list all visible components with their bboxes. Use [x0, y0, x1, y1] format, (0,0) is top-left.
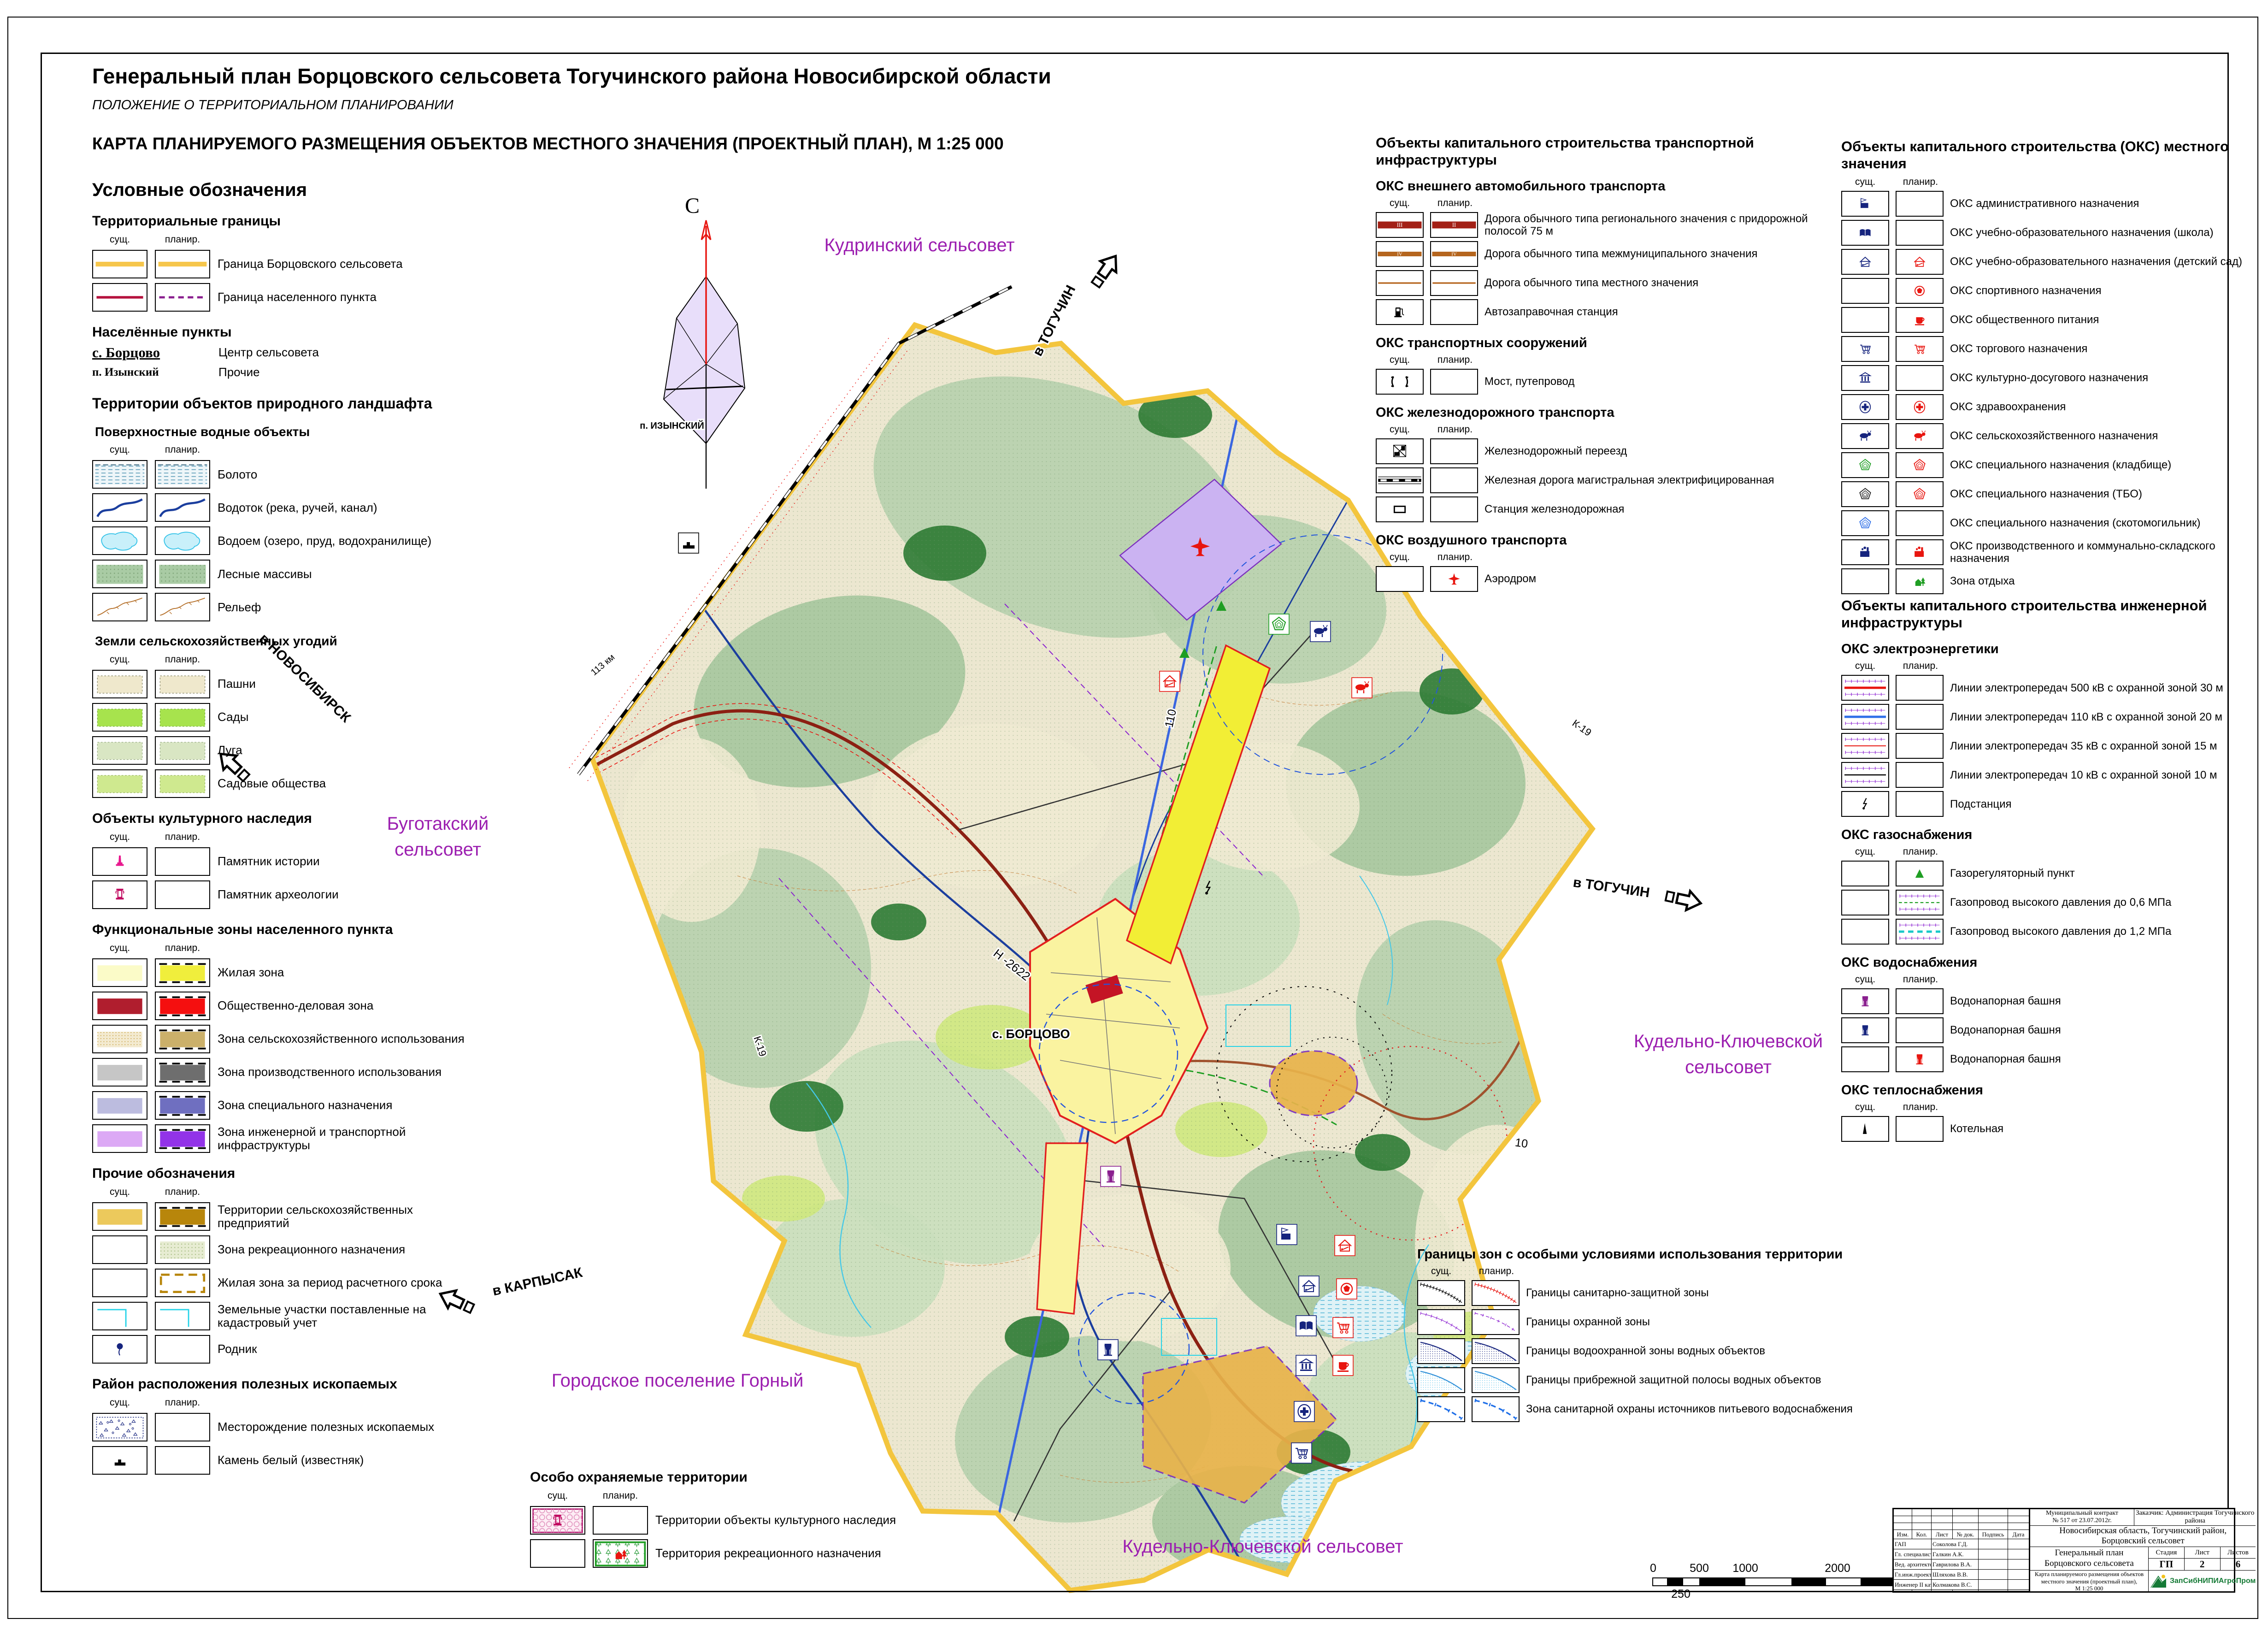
legend-swatch-planned	[1896, 988, 1944, 1014]
legend-item-label: Водонапорная башня	[1950, 1053, 2061, 1065]
stamp-cell: Колмакова В.С.	[1932, 1580, 1979, 1590]
legend-swatch-existing	[1841, 220, 1889, 246]
legend-item-label: Общественно-деловая зона	[218, 999, 373, 1013]
stamp-cell-empty	[1953, 1509, 1979, 1516]
legend-column-title: Условные обозначения	[92, 180, 475, 201]
legend-item: Аэродром	[1376, 566, 1818, 592]
legend-swatch-existing	[92, 670, 147, 698]
header-planned: планир.	[155, 1187, 210, 1198]
stamp-cell: Шляхова В.В.	[1932, 1570, 1979, 1580]
legend-swatch-existing	[92, 703, 147, 732]
legend-special-zones: Границы зон с особыми условиями использо…	[1417, 1236, 1860, 1425]
legend-item-label: Зона производственного использования	[218, 1065, 442, 1079]
legend-swatch-planned	[1896, 1046, 1944, 1072]
legend-item-label: Зона сельскохозяйственного использования	[218, 1032, 465, 1046]
legend-protected-areas: Особо охраняемые территориисущ.планир.Те…	[530, 1457, 972, 1572]
scale-tick-label: 2000	[1825, 1562, 1850, 1575]
legend-item: Зона отдыха	[1841, 568, 2251, 594]
legend-item-label: Луга	[218, 744, 242, 757]
legend-item-label: Границы водоохранной зоны водных объекто…	[1526, 1345, 1765, 1357]
legend-swatch-existing	[92, 250, 147, 278]
legend-column-title: Объекты капитального строительства инжен…	[1841, 597, 2251, 631]
legend-item-label: Месторождение полезных ископаемых	[218, 1420, 434, 1434]
legend-item: Пашни	[92, 670, 475, 698]
legend-swatch-planned	[1896, 481, 1944, 507]
stamp-cell: ГАП	[1894, 1539, 1932, 1549]
legend-section-title: Функциональные зоны населенного пункта	[92, 922, 475, 937]
legend-swatch-existing	[1841, 675, 1889, 701]
legend-swatch-planned	[1896, 704, 1944, 730]
legend-item: ОКС торгового назначения	[1841, 336, 2251, 362]
legend-swatch-planned	[155, 736, 210, 765]
stamp-cell: Соколова Г.Д.	[1932, 1539, 1979, 1549]
legend-item: Зона сельскохозяйственного использования	[92, 1025, 475, 1053]
legend-item-label: Лесные массивы	[218, 567, 312, 581]
legend-item-label: Садовые общества	[218, 777, 326, 791]
legend-right-column: Объекты капитального строительства (ОКС)…	[1841, 138, 2251, 1145]
legend-item: IVIVДорога обычного типа межмуниципально…	[1376, 241, 1818, 267]
legend-state-headers: сущ.планир.	[92, 444, 475, 455]
stamp-cell-empty	[1979, 1559, 2008, 1570]
scale-tick-label: 500	[1690, 1562, 1709, 1575]
legend-section-title: ОКС водоснабжения	[1841, 956, 2251, 970]
legend-item-label: Границы санитарно-защитной зоны	[1526, 1287, 1708, 1299]
legend-item: Памятник археологии	[92, 880, 475, 909]
stamp-cell-empty	[1932, 1590, 1953, 1591]
legend-swatch-existing	[1841, 423, 1889, 449]
legend-swatch-planned	[1896, 278, 1944, 304]
legend-item-label: Дорога обычного типа регионального значе…	[1485, 213, 1818, 238]
legend-swatch-planned	[1472, 1396, 1520, 1422]
legend-item: Садовые общества	[92, 769, 475, 798]
stamp-cell-empty	[1979, 1549, 2008, 1559]
org-logo: ЗапСибНИПИАгроПром	[2149, 1571, 2256, 1592]
legend-item-label: Памятник истории	[218, 855, 320, 868]
scale-tick-label: 1000	[1732, 1562, 1758, 1575]
legend-section-title: Земли сельскохозяйственных угодий	[95, 634, 475, 649]
legend-item: Котельная	[1841, 1116, 2251, 1142]
stamp-cell: Изм.	[1894, 1530, 1912, 1539]
legend-item: ОКС учебно-образовательного назначения (…	[1841, 220, 2251, 246]
legend-swatch-planned	[1896, 510, 1944, 536]
svg-text:IV: IV	[1397, 251, 1402, 257]
legend-swatch-planned	[155, 769, 210, 798]
header-planned: планир.	[1897, 846, 1944, 857]
stamp-cell: Дата	[2008, 1530, 2029, 1539]
legend-item: Границы прибрежной защитной полосы водны…	[1417, 1367, 1860, 1393]
legend-item-label: ОКС спортивного назначения	[1950, 284, 2101, 297]
legend-swatch-existing	[1376, 496, 1424, 522]
legend-swatch-existing	[1841, 919, 1889, 945]
legend-item: ОКС спортивного назначения	[1841, 278, 2251, 304]
stamp-cell-empty	[1979, 1523, 2008, 1530]
legend-item-label: Зона отдыха	[1950, 575, 2015, 587]
legend-swatch-existing	[1841, 1017, 1889, 1043]
legend-state-headers: сущ.планир.	[1376, 552, 1818, 563]
header-planned: планир.	[155, 444, 210, 455]
legend-swatch-planned	[1896, 249, 1944, 275]
legend-state-headers: сущ.планир.	[1376, 424, 1818, 435]
legend-swatch-existing	[92, 1058, 147, 1087]
legend-swatch-planned	[1430, 299, 1478, 325]
legend-swatch-planned	[155, 593, 210, 621]
legend-swatch-planned	[1896, 539, 1944, 565]
legend-item-label: ОКС учебно-образовательного назначения (…	[1950, 226, 2214, 239]
header-planned: планир.	[155, 654, 210, 665]
stamp-cell-empty	[1979, 1539, 2008, 1549]
legend-swatch-existing	[1841, 988, 1889, 1014]
legend-item: ОКС учебно-образовательного назначения (…	[1841, 249, 2251, 275]
legend-item: ОКС производственного и коммунально-скла…	[1841, 539, 2251, 565]
title-block: Изм.Кол.Лист№ док.ПодписьДатаГАПСоколова…	[1892, 1508, 2235, 1593]
legend-state-headers: сущ.планир.	[1841, 177, 2251, 188]
header-planned: планир.	[155, 943, 210, 954]
header-planned: планир.	[593, 1490, 648, 1501]
legend-swatch-existing	[1376, 299, 1424, 325]
legend-swatch-planned	[155, 493, 210, 522]
legend-item-label: Котельная	[1950, 1122, 2003, 1135]
stamp-cell-empty	[1979, 1516, 2008, 1523]
legend-item: Границы санитарно-защитной зоны	[1417, 1280, 1860, 1306]
stamp-cell-empty	[1894, 1523, 1912, 1530]
legend-swatch-planned	[155, 880, 210, 909]
stamp-cell: Инженер II кат.	[1894, 1580, 1932, 1590]
legend-item: Граница населенного пункта	[92, 283, 475, 312]
legend-item-label: Водонапорная башня	[1950, 995, 2061, 1007]
legend-state-headers: сущ.планир.	[92, 943, 475, 954]
legend-swatch-planned	[155, 1091, 210, 1120]
legend-item-label: ОКС специального назначения (ТБО)	[1950, 488, 2142, 500]
legend-item: ОКС общественного питания	[1841, 307, 2251, 333]
legend-item: Территория рекреационного назначения	[530, 1539, 972, 1568]
legend-swatch-planned: II	[1430, 212, 1478, 238]
legend-item: Зона рекреационного назначения	[92, 1235, 475, 1264]
legend-item-label: Земельные участки поставленные на кадаст…	[218, 1303, 475, 1330]
legend-swatch-planned	[155, 1302, 210, 1330]
legend-item: Газопровод высокого давления до 1,2 МПа	[1841, 919, 2251, 945]
legend-item: Станция железнодорожная	[1376, 496, 1818, 522]
legend-swatch-planned	[155, 1235, 210, 1264]
legend-item-label: Железнодорожный переезд	[1485, 445, 1627, 457]
legend-state-headers: сущ.планир.	[1841, 846, 2251, 857]
legend-swatch-existing	[1841, 762, 1889, 788]
legend-item: Зона специального назначения	[92, 1091, 475, 1120]
legend-swatch-existing	[1841, 452, 1889, 478]
legend-item: Луга	[92, 736, 475, 765]
legend-swatch-existing	[92, 1335, 147, 1364]
legend-swatch-existing	[1841, 890, 1889, 915]
legend-item: Газорегуляторный пункт	[1841, 861, 2251, 886]
header-existing: сущ.	[92, 1397, 147, 1408]
legend-item-label: ОКС учебно-образовательного назначения (…	[1950, 255, 2242, 268]
legend-swatch-existing	[1841, 1116, 1889, 1142]
legend-item: Линии электропередач 10 кВ с охранной зо…	[1841, 762, 2251, 788]
legend-state-headers: сущ.планир.	[1841, 1102, 2251, 1113]
header-existing: сущ.	[1376, 424, 1424, 435]
header-planned: планир.	[155, 234, 210, 245]
scale-tick-label: 0	[1650, 1562, 1656, 1575]
legend-state-headers: сущ.планир.	[1841, 661, 2251, 672]
scale-sub-label: 250	[1671, 1588, 1691, 1601]
legend-item: Мост, путепровод	[1376, 369, 1818, 395]
header-existing: сущ.	[1841, 974, 1889, 985]
legend-swatch-existing	[92, 593, 147, 621]
legend-swatch-existing	[92, 736, 147, 765]
legend-item: Водонапорная башня	[1841, 1046, 2251, 1072]
legend-item-label: Граница населенного пункта	[218, 290, 377, 304]
legend-swatch-planned	[1430, 566, 1478, 592]
legend-swatch-planned	[155, 958, 210, 987]
legend-item-label: Зона санитарной охраны источников питьев…	[1526, 1403, 1853, 1415]
legend-item-label: Жилая зона за период расчетного срока	[218, 1276, 442, 1290]
page-subtitle: ПОЛОЖЕНИЕ О ТЕРРИТОРИАЛЬНОМ ПЛАНИРОВАНИИ	[92, 98, 1659, 113]
legend-item-label: Автозаправочная станция	[1485, 306, 1618, 318]
legend-swatch-planned	[1896, 861, 1944, 886]
legend-swatch-planned	[1472, 1367, 1520, 1393]
header-planned: планир.	[1897, 661, 1944, 672]
legend-swatch-planned	[1896, 1017, 1944, 1043]
stamp-sheets-header: Листов	[2221, 1547, 2256, 1558]
title-block-signatures: Изм.Кол.Лист№ док.ПодписьДатаГАПСоколова…	[1894, 1509, 2030, 1591]
org-logo-icon	[2149, 1573, 2168, 1589]
legend-item: ОКС культурно-досугового назначения	[1841, 365, 2251, 391]
legend-item-label: Зона рекреационного назначения	[218, 1243, 405, 1257]
legend-swatch-existing	[1376, 270, 1424, 296]
stamp-cell-empty	[1953, 1516, 1979, 1523]
header-existing: сущ.	[1841, 846, 1889, 857]
legend-item-label: Зона инженерной и транспортной инфрастру…	[218, 1125, 475, 1152]
legend-item: Памятник истории	[92, 847, 475, 876]
stamp-cell: Подпись	[1979, 1530, 2008, 1539]
stamp-cell-empty	[2008, 1523, 2029, 1530]
header-planned: планир.	[1897, 1102, 1944, 1113]
legend-item: ОКС здравоохранения	[1841, 394, 2251, 420]
legend-swatch-planned	[1896, 890, 1944, 915]
legend-swatch-existing	[92, 1235, 147, 1264]
legend-swatch-planned	[155, 460, 210, 489]
legend-swatch-existing	[1841, 336, 1889, 362]
legend-state-headers: сущ.планир.	[1417, 1266, 1860, 1277]
stamp-cell-empty	[1979, 1580, 2008, 1590]
header-existing: сущ.	[92, 943, 147, 954]
stamp-cell: № док.	[1953, 1530, 1979, 1539]
legend-swatch-planned	[1896, 762, 1944, 788]
legend-item: IIIIIДорога обычного типа регионального …	[1376, 212, 1818, 238]
legend-swatch-planned	[1472, 1338, 1520, 1364]
legend-settlement-row: с. БорцовоЦентр сельсовета	[92, 344, 475, 361]
legend-swatch-planned	[1896, 394, 1944, 420]
legend-item-label: Аэродром	[1485, 573, 1536, 585]
legend-item-label: Водоем (озеро, пруд, водохранилище)	[218, 534, 431, 548]
stamp-cell-empty	[1894, 1516, 1912, 1523]
legend-item: Камень белый (известняк)	[92, 1446, 475, 1475]
legend-item-label: Газопровод высокого давления до 0,6 МПа	[1950, 896, 2171, 909]
stamp-cell-empty	[1912, 1516, 1932, 1523]
legend-swatch-existing	[92, 1446, 147, 1475]
legend-swatch-planned	[155, 1335, 210, 1364]
header-planned: планир.	[1431, 424, 1479, 435]
legend-swatch-planned	[1896, 191, 1944, 217]
legend-item: Границы водоохранной зоны водных объекто…	[1417, 1338, 1860, 1364]
settlement-sample: с. Борцово	[92, 344, 211, 361]
legend-item-label: Линии электропередач 35 кВ с охранной зо…	[1950, 740, 2217, 752]
header-planned: планир.	[1897, 177, 1944, 188]
stamp-cell-empty	[2008, 1559, 2029, 1570]
legend-item-label: Сады	[218, 710, 248, 724]
legend-swatch-planned	[1896, 365, 1944, 391]
stamp-sheet-value: 2	[2185, 1559, 2221, 1570]
legend-item: Территории сельскохозяйственных предприя…	[92, 1202, 475, 1231]
legend-swatch-existing	[92, 1413, 147, 1441]
header-planned: планир.	[155, 1397, 210, 1408]
legend-swatch-planned	[1430, 270, 1478, 296]
stamp-stage-header: Стадия	[2149, 1547, 2185, 1558]
legend-section-title: Особо охраняемые территории	[530, 1470, 972, 1485]
legend-swatch-existing	[1841, 1046, 1889, 1072]
stamp-doc-title: Карта планируемого размещения объектов м…	[2030, 1571, 2149, 1592]
legend-item-label: ОКС культурно-досугового назначения	[1950, 372, 2148, 384]
legend-column-title: Объекты капитального строительства (ОКС)…	[1841, 138, 2251, 172]
legend-state-headers: сущ.планир.	[92, 1397, 475, 1408]
legend-group-title: Территории объектов природного ландшафта	[92, 395, 475, 412]
legend-item: Водонапорная башня	[1841, 1017, 2251, 1043]
legend-swatch-existing	[92, 283, 147, 312]
legend-swatch-existing	[1376, 467, 1424, 493]
legend-item: Водонапорная башня	[1841, 988, 2251, 1014]
legend-section-title: Территориальные границы	[92, 213, 475, 229]
stamp-cell: Гл. специалист	[1894, 1549, 1932, 1559]
legend-state-headers: сущ.планир.	[92, 1187, 475, 1198]
stamp-cell-empty	[1932, 1509, 1953, 1516]
legend-item-label: ОКС здравоохранения	[1950, 401, 2066, 413]
stamp-cell-empty	[1912, 1509, 1932, 1516]
legend-section-title: Район расположения полезных ископаемых	[92, 1376, 475, 1392]
stamp-client: Заказчик: Администрация Тогучинского рай…	[2134, 1509, 2256, 1525]
legend-item: Территории объекты культурного наследия	[530, 1506, 972, 1535]
legend-swatch-planned	[1896, 568, 1944, 594]
legend-section-title: Населённые пункты	[92, 325, 475, 340]
legend-item: Железная дорога магистральная электрифиц…	[1376, 467, 1818, 493]
legend-item: ОКС сельскохозяйственного назначения	[1841, 423, 2251, 449]
legend-swatch-existing	[92, 1202, 147, 1231]
legend-swatch-existing	[92, 526, 147, 555]
legend-section-title: ОКС теплоснабжения	[1841, 1083, 2251, 1098]
stamp-cell-empty	[2008, 1539, 2029, 1549]
legend-item-label: ОКС сельскохозяйственного назначения	[1950, 430, 2158, 442]
legend-item-label: Дорога обычного типа межмуниципального з…	[1485, 248, 1757, 260]
legend-swatch-existing	[1841, 365, 1889, 391]
legend-swatch-existing: IV	[1376, 241, 1424, 267]
legend-swatch-existing	[530, 1539, 585, 1568]
legend-item-label: Болото	[218, 468, 257, 482]
legend-item-label: Водонапорная башня	[1950, 1024, 2061, 1036]
stamp-cell-empty	[2008, 1549, 2029, 1559]
legend-swatch-existing	[92, 992, 147, 1020]
legend-swatch-existing	[1841, 704, 1889, 730]
settlement-sample: п. Изынский	[92, 366, 211, 379]
header-planned: планир.	[1897, 974, 1944, 985]
header-existing: сущ.	[1376, 354, 1424, 366]
legend-swatch-planned	[155, 1413, 210, 1441]
legend-state-headers: сущ.планир.	[92, 832, 475, 843]
legend-item-label: Водоток (река, ручей, канал)	[218, 501, 377, 515]
stamp-cell-empty	[1979, 1590, 2008, 1591]
legend-swatch-planned	[593, 1506, 648, 1535]
legend-item: ОКС специального назначения (скотомогиль…	[1841, 510, 2251, 536]
header-existing: сущ.	[92, 654, 147, 665]
legend-swatch-existing	[1376, 438, 1424, 464]
legend-section-title: ОКС внешнего автомобильного транспорта	[1376, 179, 1818, 194]
header-planned: планир.	[1473, 1266, 1520, 1277]
legend-swatch-planned	[593, 1539, 648, 1568]
legend-swatch-existing	[1417, 1280, 1465, 1306]
legend-section-title: ОКС железнодорожного транспорта	[1376, 406, 1818, 420]
legend-swatch-planned	[155, 1269, 210, 1297]
legend-item-label: Родник	[218, 1342, 257, 1356]
header-existing: сущ.	[92, 1187, 147, 1198]
legend-item: Подстанция	[1841, 791, 2251, 817]
legend-item: Месторождение полезных ископаемых	[92, 1413, 475, 1441]
legend-item: Линии электропередач 110 кВ с охранной з…	[1841, 704, 2251, 730]
legend-section-title: Поверхностные водные объекты	[95, 425, 475, 439]
legend-item: ОКС специального назначения (ТБО)	[1841, 481, 2251, 507]
header-existing: сущ.	[1841, 661, 1889, 672]
legend-swatch-existing	[92, 880, 147, 909]
legend-item-label: Подстанция	[1950, 798, 2012, 810]
legend-swatch-planned	[1896, 919, 1944, 945]
svg-text:IV: IV	[1451, 251, 1457, 257]
legend-swatch-existing: III	[1376, 212, 1424, 238]
legend-swatch-planned	[155, 1446, 210, 1475]
legend-item: Сады	[92, 703, 475, 732]
header-existing: сущ.	[1841, 1102, 1889, 1113]
legend-swatch-planned	[155, 1058, 210, 1087]
legend-item: Общественно-деловая зона	[92, 992, 475, 1020]
stamp-cell-empty	[1953, 1590, 1979, 1591]
legend-settlement-row: п. ИзынскийПрочие	[92, 366, 475, 379]
legend-swatch-planned	[155, 1124, 210, 1153]
header-existing: сущ.	[92, 234, 147, 245]
legend-item-label: ОКС специального назначения (скотомогиль…	[1950, 517, 2200, 529]
legend-item: Жилая зона за период расчетного срока	[92, 1269, 475, 1297]
legend-item-label: Территории сельскохозяйственных предприя…	[218, 1203, 475, 1230]
stamp-region: Новосибирская область, Тогучинский район…	[2030, 1526, 2256, 1547]
stamp-sheet-header: Лист	[2185, 1547, 2221, 1558]
legend-swatch-existing	[1376, 369, 1424, 395]
legend-swatch-planned	[155, 250, 210, 278]
legend-item: ОКС административного назначения	[1841, 191, 2251, 217]
legend-swatch-planned	[155, 560, 210, 588]
legend-item: Зона производственного использования	[92, 1058, 475, 1087]
legend-swatch-existing	[92, 1091, 147, 1120]
header-existing: сущ.	[1376, 552, 1424, 563]
legend-item-label: ОКС торгового назначения	[1950, 343, 2087, 355]
stamp-cell-empty	[2008, 1570, 2029, 1580]
stamp-cell: Лист	[1932, 1530, 1953, 1539]
stamp-cell-empty	[2008, 1580, 2029, 1590]
legend-swatch-existing	[92, 1302, 147, 1330]
legend-swatch-existing	[1417, 1338, 1465, 1364]
legend-transport-column: Объекты капитального строительства транс…	[1376, 135, 1818, 595]
legend-item-label: Газопровод высокого давления до 1,2 МПа	[1950, 925, 2171, 938]
legend-state-headers: сущ.планир.	[1376, 198, 1818, 209]
legend-swatch-existing	[1841, 481, 1889, 507]
legend-swatch-planned	[155, 526, 210, 555]
legend-item-label: Рельеф	[218, 601, 261, 614]
legend-swatch-planned	[155, 703, 210, 732]
legend-swatch-planned	[1896, 423, 1944, 449]
legend-swatch-existing	[1841, 307, 1889, 333]
